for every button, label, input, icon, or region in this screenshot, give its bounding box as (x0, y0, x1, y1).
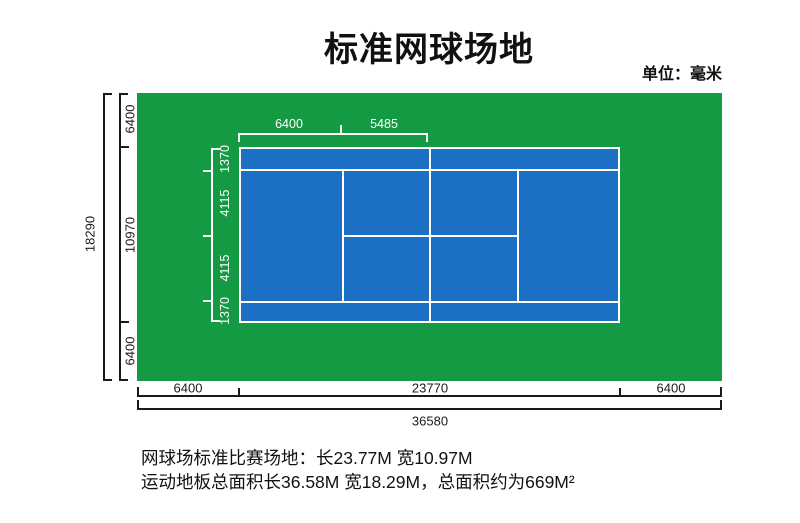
dim-tick (119, 93, 128, 95)
dim-tick (619, 388, 621, 396)
dim-label-1370-top: 1370 (218, 145, 232, 173)
dim-label-6400: 6400 (275, 117, 303, 131)
dim-label-margin-left: 6400 (174, 381, 203, 396)
dim-label-5485: 5485 (370, 117, 398, 131)
dim-tick (238, 133, 240, 142)
tennis-court-diagram: 标准网球场地 单位：毫米 6400 5485 1370 4115 4115 13… (0, 0, 800, 523)
dim-tick (340, 125, 342, 133)
dim-label-total-width: 18290 (83, 216, 98, 252)
dim-line (103, 93, 105, 381)
center-service-line (342, 235, 519, 237)
dim-label-margin-bottom: 6400 (123, 337, 138, 366)
dim-tick (203, 170, 211, 172)
dim-tick (238, 388, 240, 396)
caption-line-1: 网球场标准比赛场地：长23.77M 宽10.97M (141, 446, 575, 470)
dim-line (137, 408, 722, 410)
dim-label-4115-top: 4115 (218, 190, 232, 217)
dim-tick (121, 146, 129, 148)
dim-label-margin-right: 6400 (657, 381, 686, 396)
unit-label: 单位：毫米 (642, 60, 722, 84)
dim-tick (103, 379, 112, 381)
dim-label-total-length: 36580 (412, 414, 448, 429)
dim-label-court-length: 23770 (412, 381, 448, 396)
dim-line (238, 133, 428, 135)
dim-label-court-width: 10970 (123, 217, 138, 253)
dim-line (119, 93, 121, 381)
dim-tick (137, 387, 139, 397)
dim-label-margin-top: 6400 (123, 105, 138, 134)
dim-tick (203, 300, 211, 302)
dim-tick (103, 93, 112, 95)
caption-line-2: 运动地板总面积长36.58M 宽18.29M，总面积约为669M² (141, 470, 575, 494)
dim-tick (121, 321, 129, 323)
tennis-court (239, 147, 620, 323)
dim-tick (426, 133, 428, 142)
dim-tick (720, 400, 722, 410)
dim-tick (119, 379, 128, 381)
caption: 网球场标准比赛场地：长23.77M 宽10.97M 运动地板总面积长36.58M… (141, 446, 575, 494)
dim-label-4115-bottom: 4115 (218, 255, 232, 282)
dim-tick (137, 400, 139, 410)
dim-label-1370-bottom: 1370 (218, 297, 232, 325)
dim-tick (720, 387, 722, 397)
dim-tick (203, 235, 211, 237)
dim-line (211, 148, 213, 322)
